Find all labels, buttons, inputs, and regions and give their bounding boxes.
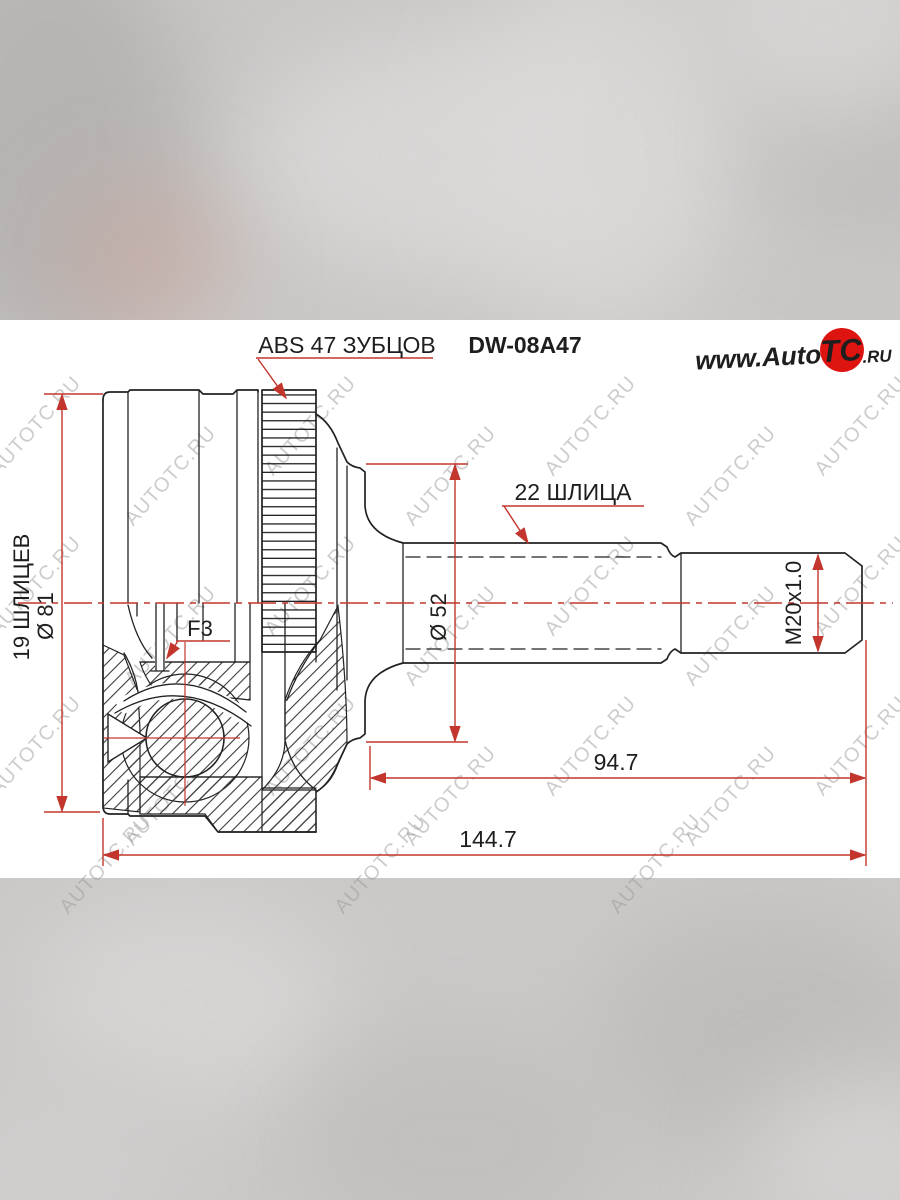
abs-ring-teeth — [262, 390, 316, 648]
product-image-page: { "title_block": { "abs_label": "ABS 47 … — [0, 0, 900, 1200]
part-number: DW-08A47 — [468, 332, 581, 358]
watermark: AUTOTC.RU — [540, 372, 640, 480]
watermark: AUTOTC.RU — [810, 692, 900, 800]
logo-text-tc: TC — [819, 332, 863, 369]
groove-label: F3 — [187, 616, 213, 641]
autotc-logo: www.Auto TC .RU — [694, 325, 893, 379]
watermark: AUTOTC.RU — [55, 810, 155, 918]
watermark: AUTOTC.RU — [810, 372, 900, 480]
watermark: AUTOTC.RU — [540, 692, 640, 800]
watermark: AUTOTC.RU — [0, 692, 86, 800]
logo-text-suffix: .RU — [862, 346, 893, 367]
shaft-splines-label: 22 ШЛИЦА — [514, 479, 632, 505]
watermark: AUTOTC.RU — [120, 422, 220, 530]
watermark: AUTOTC.RU — [605, 810, 705, 918]
shaft-length-label: 94.7 — [594, 749, 639, 775]
body-diameter-label: Ø 81 — [33, 592, 58, 640]
watermark-grid: AUTOTC.RU AUTOTC.RU AUTOTC.RU AUTOTC.RU … — [0, 372, 900, 918]
watermark: AUTOTC.RU — [0, 372, 86, 480]
watermark: AUTOTC.RU — [540, 532, 640, 640]
logo-text-prefix: www.Auto — [694, 339, 822, 376]
watermark: AUTOTC.RU — [810, 532, 900, 640]
watermark: AUTOTC.RU — [680, 582, 780, 690]
watermark: AUTOTC.RU — [680, 422, 780, 530]
watermark: AUTOTC.RU — [400, 422, 500, 530]
abs-teeth-label: ABS 47 ЗУБЦОВ — [258, 332, 435, 358]
total-length-label: 144.7 — [459, 826, 517, 852]
shaft-seat-diameter-label: Ø 52 — [426, 593, 451, 641]
thread-label: M20x1.0 — [781, 561, 806, 645]
inner-splines-label: 19 ШЛИЦЕВ — [9, 534, 34, 661]
bell-top-profile — [103, 390, 258, 400]
cv-joint-technical-drawing: AUTOTC.RU AUTOTC.RU AUTOTC.RU AUTOTC.RU … — [0, 0, 900, 1200]
splines-leader-arrow — [504, 506, 528, 543]
watermark: AUTOTC.RU — [330, 810, 430, 918]
